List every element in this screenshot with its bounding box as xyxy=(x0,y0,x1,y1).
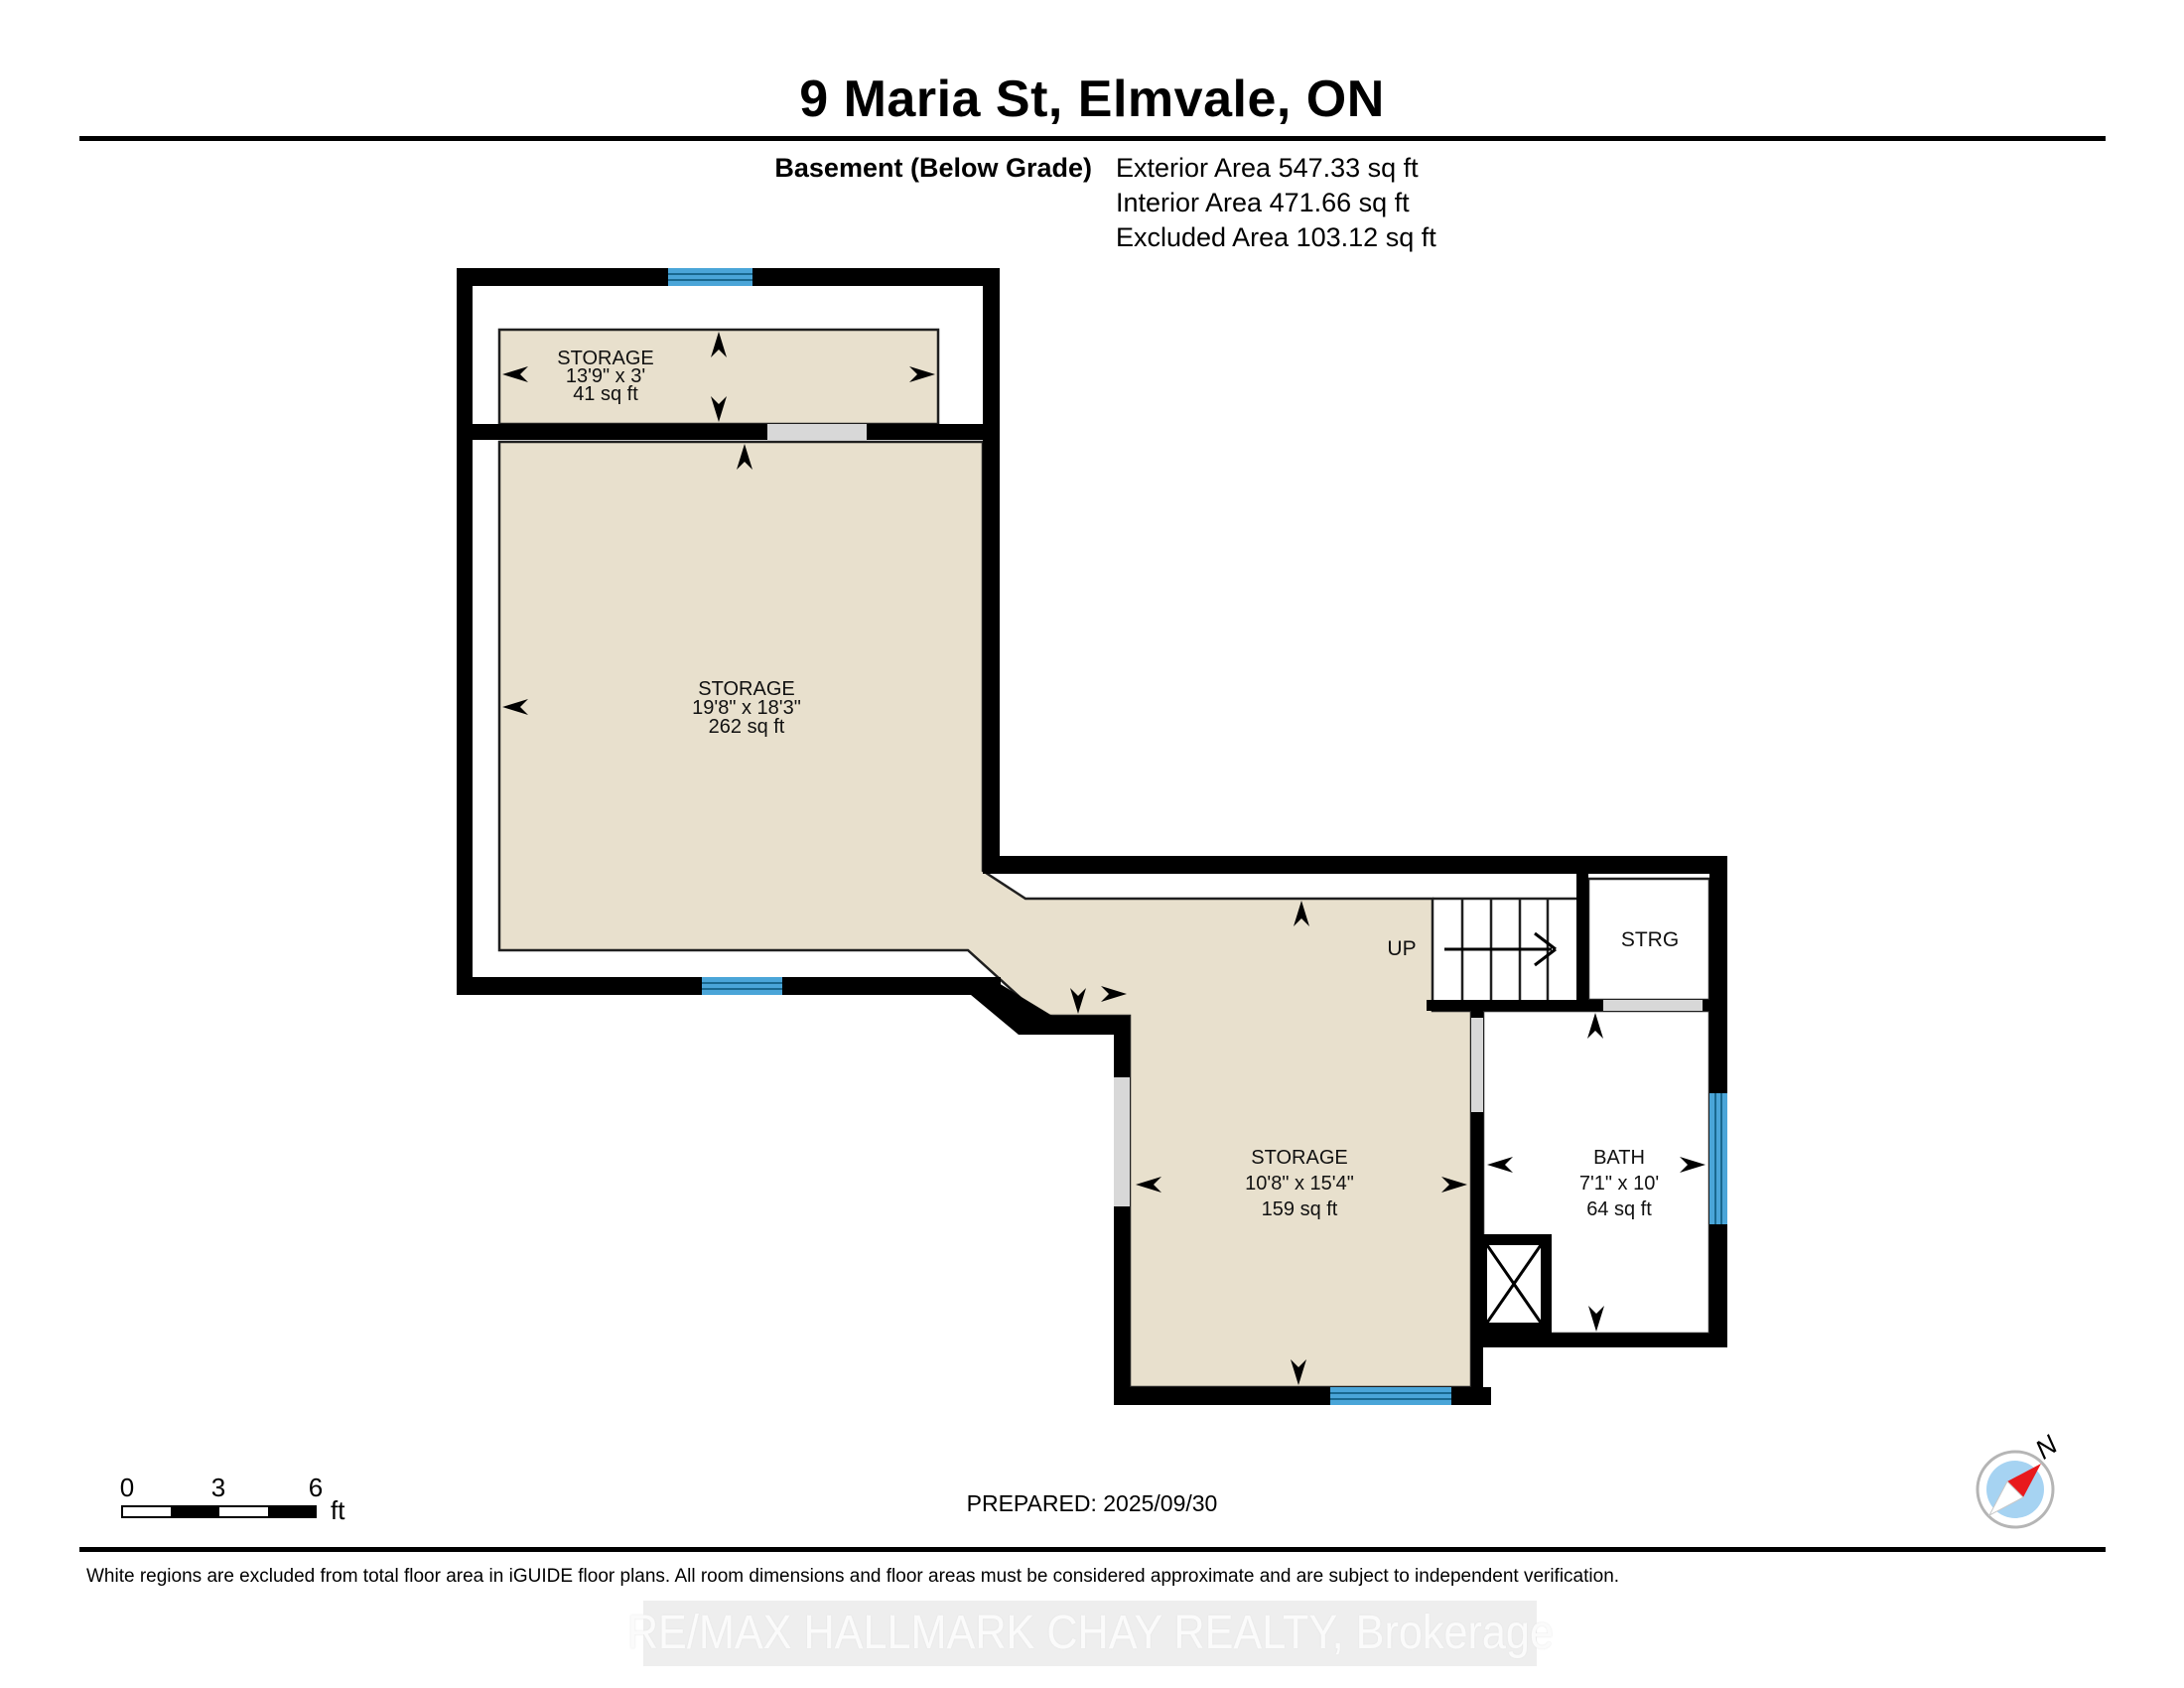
room-label: 262 sq ft xyxy=(709,716,785,738)
door-opening-interior-wall xyxy=(767,424,867,440)
wall-lower-left xyxy=(1114,1016,1130,1405)
room-label: 64 sq ft xyxy=(1586,1198,1652,1220)
wall-right-upper xyxy=(983,268,1000,874)
window-top xyxy=(668,268,752,286)
brokerage-watermark-text: RE/MAX HALLMARK CHAY REALTY, Brokerage xyxy=(626,1610,1553,1657)
door-opening-strg xyxy=(1603,1000,1703,1011)
window-storage-bottom xyxy=(1330,1387,1451,1405)
room-label: BATH xyxy=(1593,1147,1645,1169)
wall-bath-bottom xyxy=(1476,1334,1727,1347)
room-label: STORAGE xyxy=(1251,1147,1347,1169)
floor-plan-drawing: 036ftNSTORAGE13'9" x 3'41 sq ftSTORAGE19… xyxy=(0,0,2184,1688)
room-label: 7'1" x 10' xyxy=(1579,1173,1659,1195)
wall-interior xyxy=(473,424,983,440)
wall-strg-left xyxy=(1576,856,1588,1011)
room-label: 10'8" x 15'4" xyxy=(1245,1173,1354,1195)
window-bath xyxy=(1709,1093,1727,1224)
footer-divider xyxy=(79,1547,2106,1552)
strg-room-label: STRG xyxy=(1621,928,1679,951)
wall-corridor-top xyxy=(983,856,1727,874)
prepared-date: PREPARED: 2025/09/30 xyxy=(0,1492,2184,1515)
wall-left xyxy=(457,268,473,995)
room-label: 41 sq ft xyxy=(573,383,638,405)
floor-plan-page: 9 Maria St, Elmvale, ON Basement (Below … xyxy=(0,0,2184,1688)
brokerage-watermark: RE/MAX HALLMARK CHAY REALTY, Brokerage xyxy=(643,1601,1537,1666)
stairs-up-label: UP xyxy=(1387,937,1416,960)
door-opening-storage-left xyxy=(1114,1077,1130,1206)
room-label: 159 sq ft xyxy=(1262,1198,1338,1220)
window-bottom-upper xyxy=(702,977,782,995)
disclaimer-text: White regions are excluded from total fl… xyxy=(86,1567,1619,1586)
door-opening-bath xyxy=(1471,1018,1483,1112)
